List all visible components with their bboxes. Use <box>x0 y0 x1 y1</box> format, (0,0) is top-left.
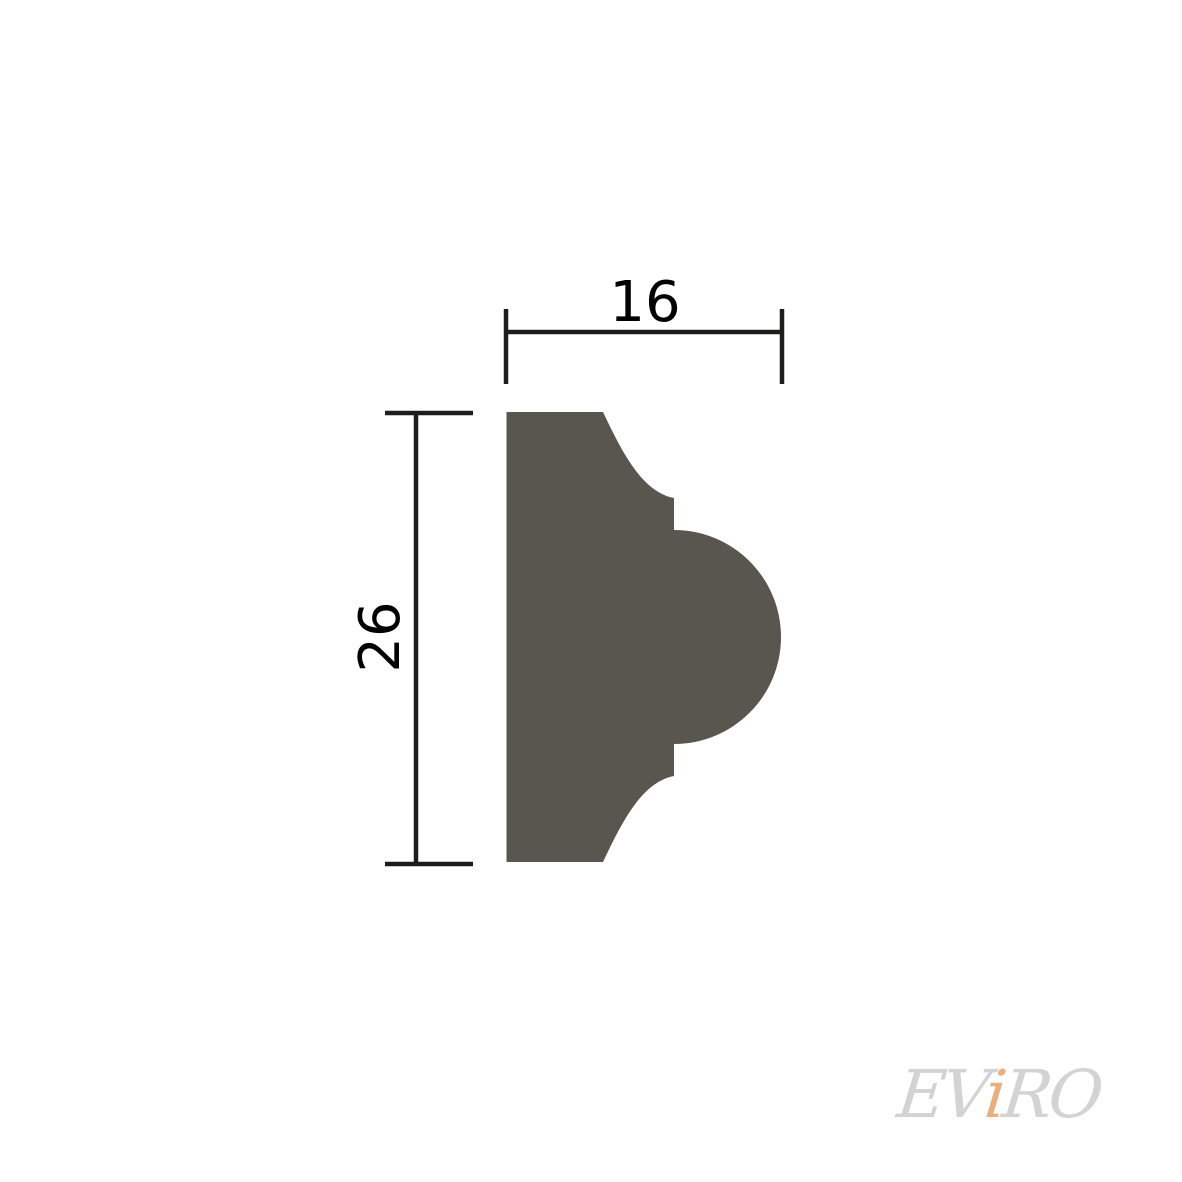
molding-profile-shape <box>507 412 782 862</box>
watermark-text-suffix: RO <box>999 1056 1104 1133</box>
width-dimension-label: 16 <box>609 270 680 335</box>
profile-drawing: 16 26 <box>0 0 1182 1182</box>
height-dimension-label: 26 <box>348 601 413 672</box>
watermark-text-prefix: EV <box>894 1056 990 1133</box>
diagram-canvas: 16 26 EViRO <box>0 0 1182 1182</box>
watermark-logo: EViRO <box>894 1056 1162 1133</box>
